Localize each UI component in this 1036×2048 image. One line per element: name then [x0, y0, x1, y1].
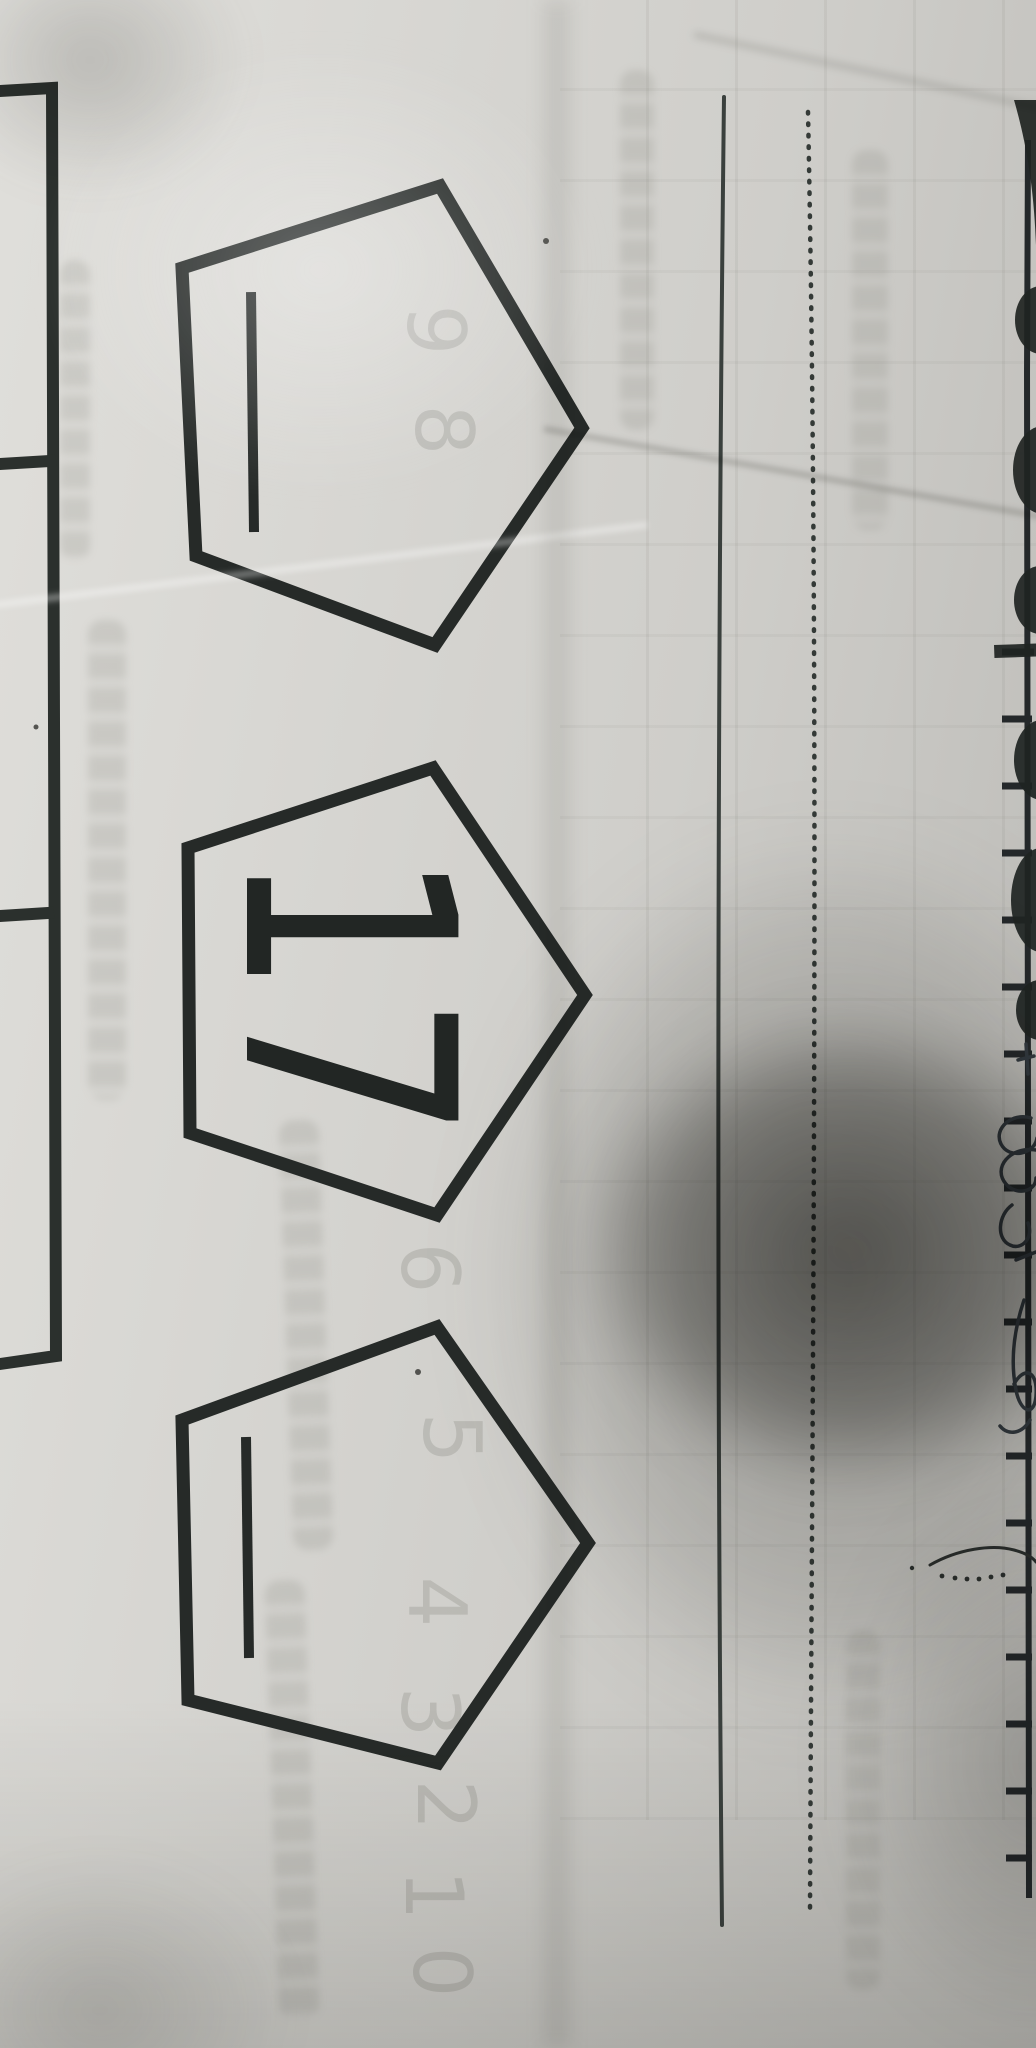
answer-box-outline	[0, 88, 56, 1364]
ghost-text-bar	[620, 70, 654, 430]
paper-speck	[34, 725, 39, 730]
ghost-text-bar	[60, 260, 90, 560]
shadow-bottom-left	[0, 1800, 360, 2048]
worksheet-photo: 9 8 6 5 4 3 2 1 0 17	[0, 0, 1036, 2048]
paper-crease-highlight	[0, 520, 648, 610]
ghost-digit: 9	[389, 305, 482, 356]
left-answer-boxes	[0, 88, 56, 1364]
pentagon-bottom-blank-line	[246, 1437, 249, 1658]
paper-speck	[543, 238, 549, 244]
ghost-text-bar	[88, 620, 126, 1100]
ghost-text-bar	[279, 1119, 334, 1550]
answer-box-divider	[0, 913, 48, 916]
shadow-top-left	[0, 0, 300, 240]
ghost-digit: 8	[397, 405, 490, 456]
answer-box-divider	[0, 461, 50, 464]
ghost-text-bar	[852, 150, 888, 530]
pentagon-top-blank-line	[251, 292, 254, 532]
pentagon-top-outline	[182, 186, 582, 645]
pentagon-top	[182, 186, 582, 645]
